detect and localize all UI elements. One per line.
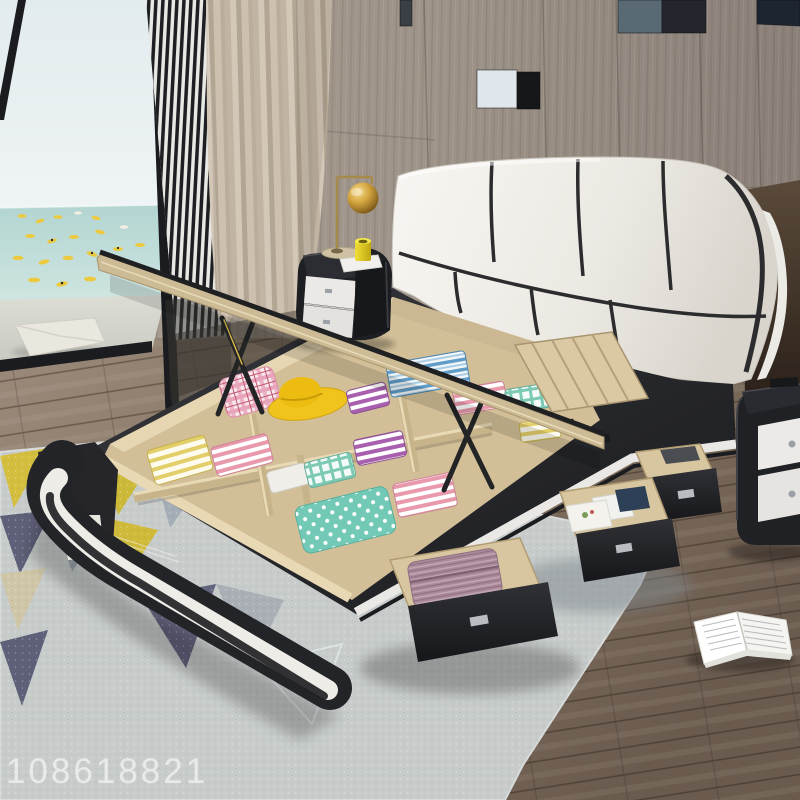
watermark: 108618821 [6,752,208,792]
bedroom-product-photo: 108618821 [0,0,800,800]
photo-canvas [0,0,800,800]
